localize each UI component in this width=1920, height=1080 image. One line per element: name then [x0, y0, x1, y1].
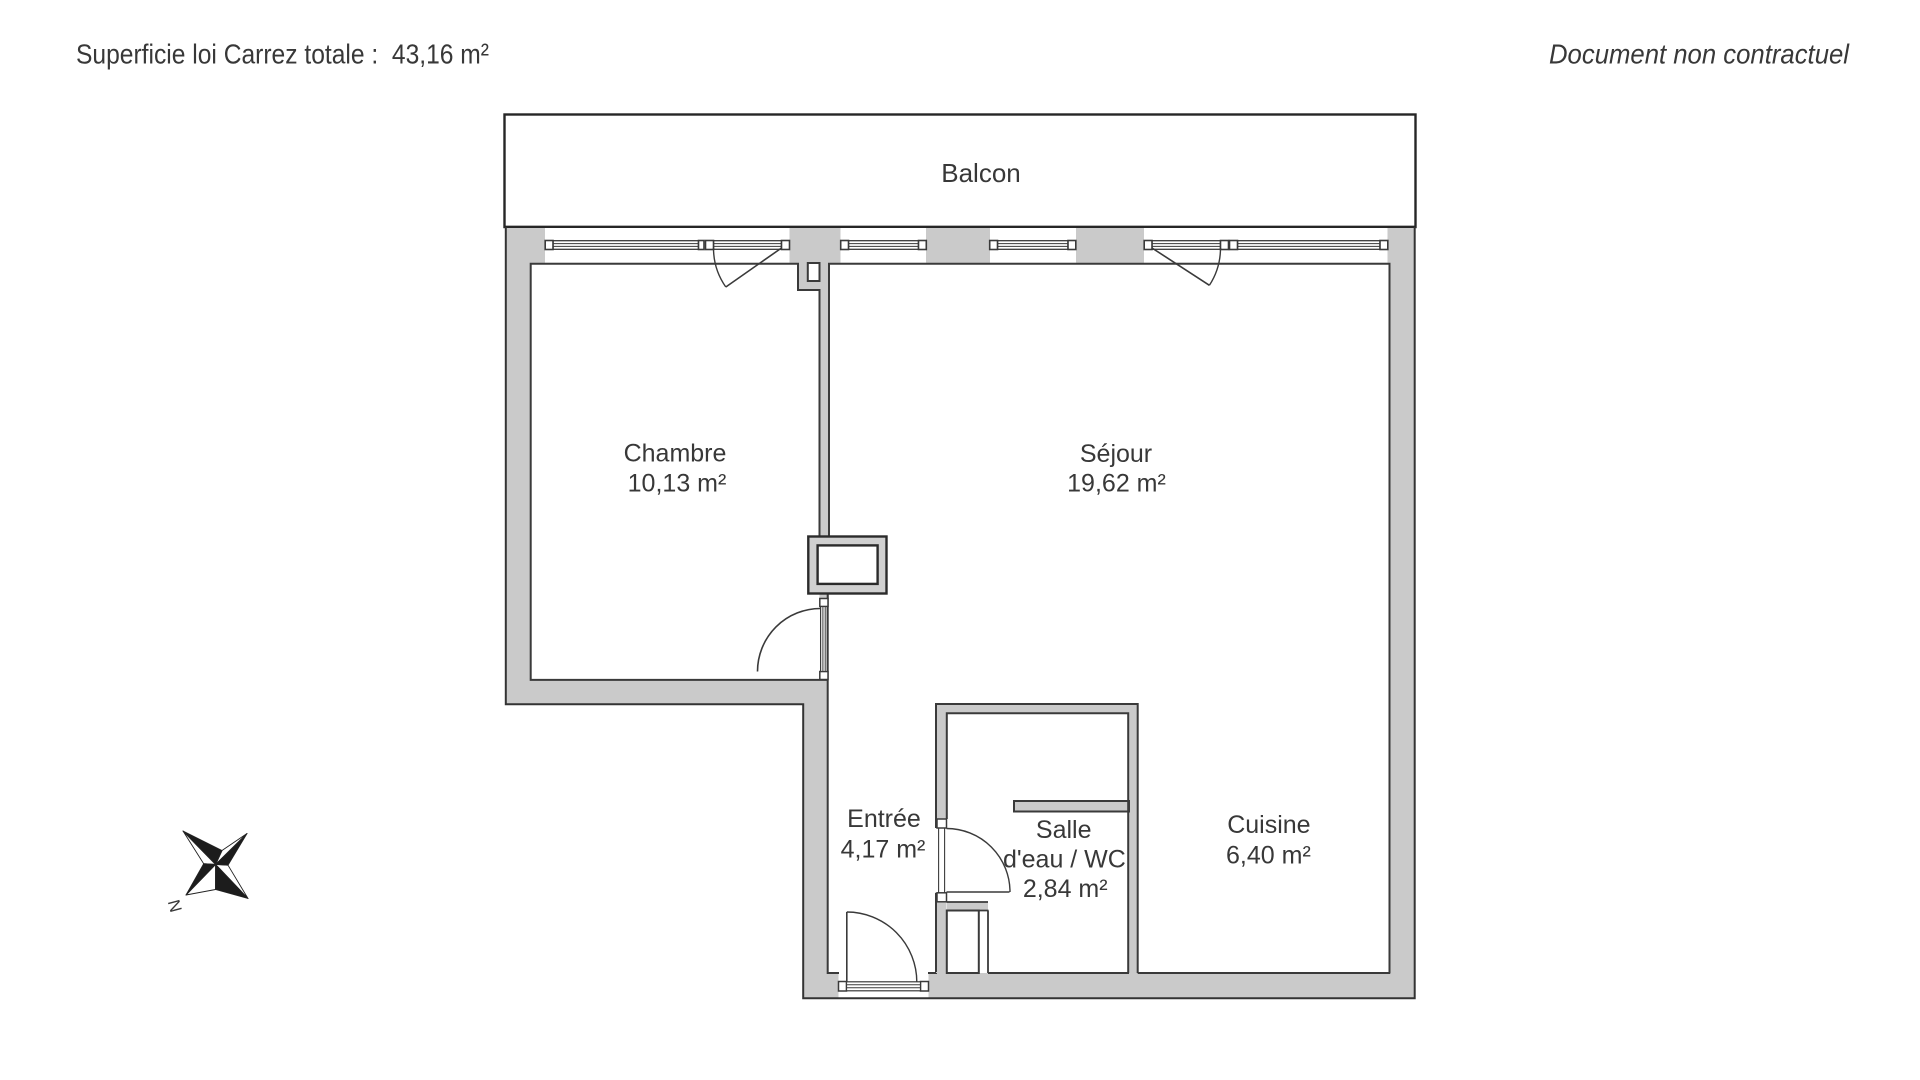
svg-text:Séjour: Séjour — [1080, 440, 1152, 468]
svg-text:Document non contractuel: Document non contractuel — [1549, 39, 1850, 70]
svg-text:d'eau / WC: d'eau / WC — [1003, 846, 1126, 874]
svg-text:6,40 m²: 6,40 m² — [1226, 842, 1311, 870]
svg-text:Salle: Salle — [1036, 816, 1092, 844]
svg-text:10,13 m²: 10,13 m² — [628, 470, 727, 498]
svg-text:Superficie loi Carrez totale :: Superficie loi Carrez totale : 43,16 m² — [76, 39, 489, 70]
svg-text:4,17 m²: 4,17 m² — [841, 836, 926, 864]
svg-text:Cuisine: Cuisine — [1227, 811, 1310, 839]
svg-text:Balcon: Balcon — [941, 158, 1021, 188]
svg-text:Chambre: Chambre — [624, 440, 727, 468]
svg-text:19,62 m²: 19,62 m² — [1067, 470, 1166, 498]
svg-text:Entrée: Entrée — [847, 805, 921, 833]
svg-text:2,84 m²: 2,84 m² — [1023, 875, 1108, 903]
